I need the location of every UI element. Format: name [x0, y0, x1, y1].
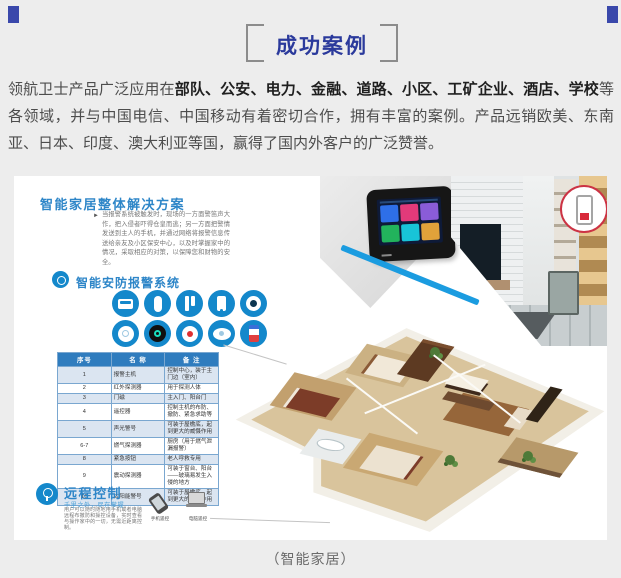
- phone-label: 手机遥控: [142, 516, 178, 522]
- corner-square-right: [607, 6, 618, 23]
- intro-prefix: 领航卫士产品广泛应用在: [8, 81, 175, 98]
- caption: （智能家居）: [0, 549, 621, 569]
- security-icon: [52, 271, 69, 288]
- security-section-title: 智能安防报警系统: [76, 274, 180, 291]
- intro-bold: 部队、公安、电力、金融、道路、小区、工矿企业、酒店、学校: [175, 81, 599, 98]
- alarm-host-icon: [112, 290, 139, 317]
- table-header-row: 序号 名 称 备 注: [58, 353, 219, 367]
- living-room-photo: [451, 176, 607, 346]
- table-row: 2红外探测器用于探测人体: [58, 384, 219, 394]
- table-row: 4遥控器控制主机的布防、撤防、紧急求助等: [58, 404, 219, 421]
- phone-callout-circle: [560, 185, 607, 233]
- alarm-panel-device: [366, 186, 456, 262]
- bullet-icon: ►: [93, 213, 99, 219]
- panic-button-icon: [176, 320, 203, 347]
- device-screen: [377, 196, 443, 245]
- solution-panel: 智能家居整体解决方案 ► 当报警系统被触发时，现场的一方面警笛声大作，把入侵者吓…: [14, 176, 607, 540]
- laptop-icon: [188, 492, 205, 504]
- table-row: 6-7燃气探测器厨房（用于燃气泄漏报警）: [58, 438, 219, 455]
- laptop-label: 电脑遥控: [180, 516, 216, 522]
- table-row: 1报警主机控制中心，装于主门边（室内）: [58, 367, 219, 384]
- remote-control-icon: [208, 290, 235, 317]
- intro-paragraph: 领航卫士产品广泛应用在部队、公安、电力、金融、道路、小区、工矿企业、酒店、学校等…: [8, 76, 614, 157]
- gas-detector-icon: [144, 320, 171, 347]
- smoke-detector-icon: [112, 320, 139, 347]
- wall-phone-icon: [576, 195, 593, 225]
- table-row: 5声光警号可装于屋檐底，起到更大的威慑作用: [58, 421, 219, 438]
- pir-detector-icon: [144, 290, 171, 317]
- table-row: 8紧急按钮老人呼救专用: [58, 455, 219, 465]
- remote-bulb-icon: [36, 483, 58, 505]
- plant: [523, 451, 533, 461]
- door-sensor-icon: [176, 290, 203, 317]
- page-title: 成功案例: [246, 30, 398, 60]
- tv-screen: [460, 224, 501, 282]
- camera-icon: [240, 290, 267, 317]
- page: 成功案例 领航卫士产品广泛应用在部队、公安、电力、金融、道路、小区、工矿企业、酒…: [0, 0, 621, 578]
- floor-plan: [228, 326, 616, 534]
- table-row: 3门磁主入门、阳台门: [58, 394, 219, 404]
- section-title-box: 成功案例: [246, 24, 398, 62]
- remote-description: 用户可以随时随地用手机或者电脑远程布撤防和操控设备，实时查看与操作家中的一切，无…: [64, 508, 142, 532]
- corner-square-left: [8, 6, 19, 23]
- solution-description: 当报警系统被触发时，现场的一方面警笛声大作，把入侵者吓得仓皇而逃；另一方面把警情…: [102, 210, 230, 267]
